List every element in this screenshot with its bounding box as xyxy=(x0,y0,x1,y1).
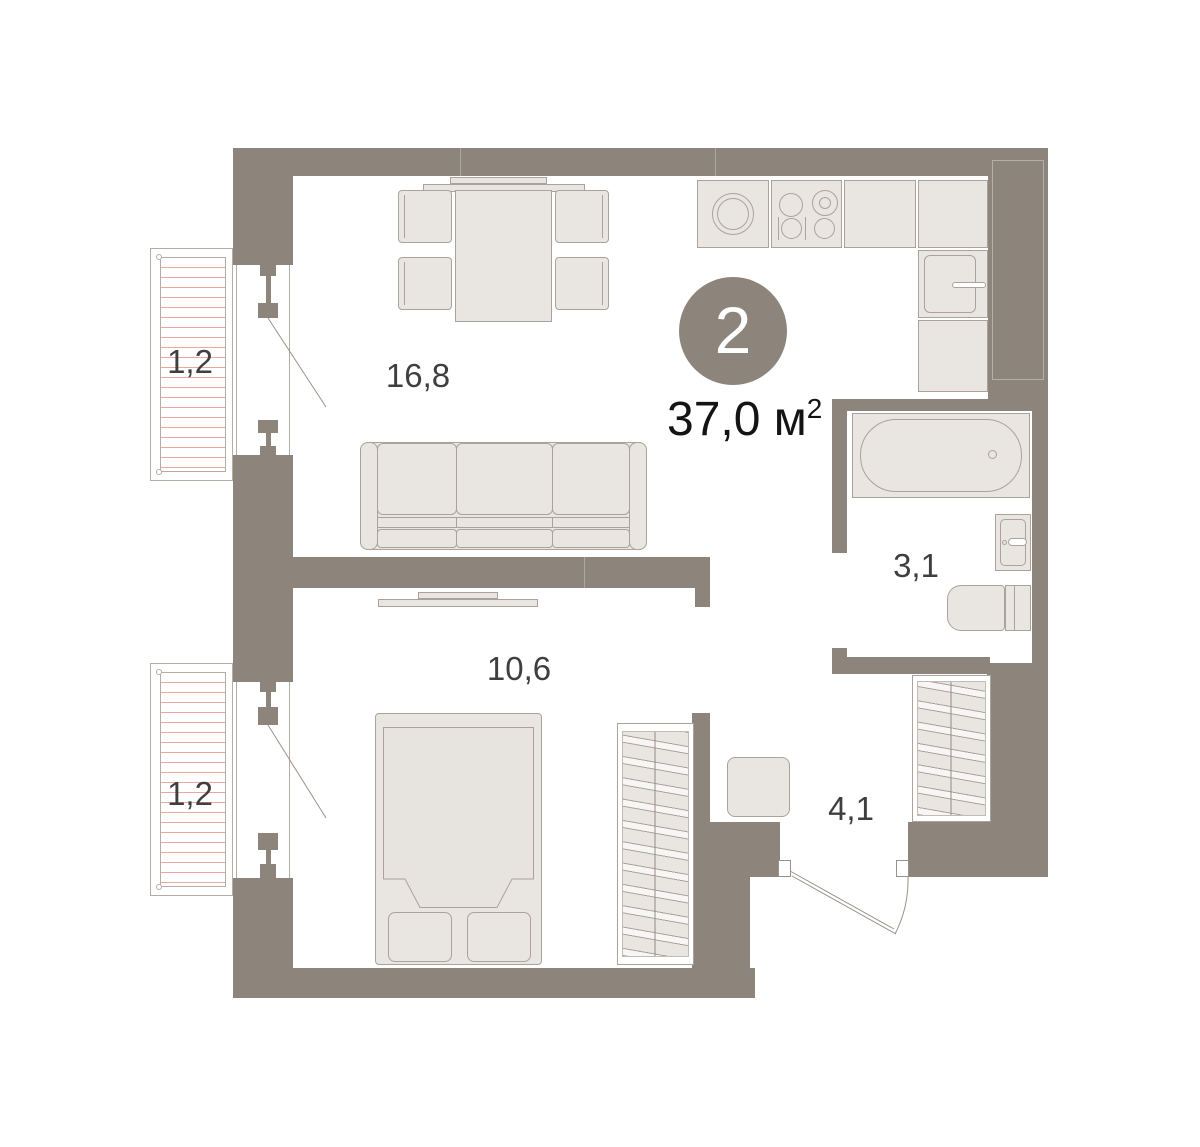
kitchen-round-sink-inner xyxy=(717,198,749,230)
kitchen-corner-module xyxy=(918,180,988,248)
toilet-bowl xyxy=(947,585,1005,631)
wall-bathroom-top xyxy=(847,399,1048,411)
window-bottom-outer-line xyxy=(236,682,237,878)
wall-left-upper xyxy=(233,148,293,265)
kitchen-counter-module xyxy=(844,180,916,248)
wall-bathroom-bottom xyxy=(847,657,990,674)
balcony-door-swing-bottom xyxy=(268,725,326,818)
rooms-count-value: 2 xyxy=(715,293,752,367)
balcony-bottom-area-label: 1,2 xyxy=(167,775,213,813)
window-bottom-hinge-block xyxy=(258,707,278,725)
dining-chair-bottom-right xyxy=(555,257,609,310)
sofa-back-rail-1 xyxy=(377,517,457,528)
stove-burner-3 xyxy=(781,218,802,239)
balcony-top-rail-post-a xyxy=(156,254,162,260)
tv xyxy=(378,599,538,607)
wall-bottom xyxy=(233,968,755,998)
entry-door-jamb-left xyxy=(778,860,791,877)
rooms-count-badge: 2 xyxy=(679,277,787,385)
sofa-seat-cushion-1 xyxy=(377,443,457,515)
bedroom-area-label: 10,6 xyxy=(487,650,551,688)
hallway-stool xyxy=(727,757,790,817)
bathroom-area-label: 3,1 xyxy=(893,547,939,585)
window-bottom-post-b xyxy=(260,864,276,878)
stove-burner-2-inner xyxy=(819,197,831,209)
balcony-top-rail-post-b xyxy=(156,469,162,475)
bathtub-drain xyxy=(988,450,997,459)
bathroom-faucet-dot xyxy=(1002,540,1007,545)
kitchen-lower-cabinet xyxy=(918,320,988,392)
wall-bathroom-left xyxy=(832,399,847,553)
dining-table xyxy=(455,190,552,322)
toilet-tank xyxy=(1005,585,1031,631)
hallway-area-label: 4,1 xyxy=(828,790,874,828)
dining-chair-top-right xyxy=(555,190,609,243)
window-bottom-stem-a xyxy=(266,692,271,707)
balcony-bottom-rail-post-a xyxy=(156,669,162,675)
bathroom-faucet xyxy=(1008,538,1027,546)
wall-hall-right xyxy=(990,682,1048,822)
wall-bathroom-left-stub xyxy=(832,648,847,674)
bed-pillow-right xyxy=(467,912,531,962)
console-center xyxy=(450,177,547,184)
window-top-post-b xyxy=(260,446,276,455)
window-top-block-b xyxy=(258,420,278,433)
wall-seam-2 xyxy=(715,148,716,176)
window-top-inner-line xyxy=(289,265,290,455)
window-top-hinge-block xyxy=(258,303,278,318)
total-area-value: 37,0 xyxy=(667,393,760,446)
balcony-bottom-rail-post-b xyxy=(156,884,162,890)
window-bottom-block-b xyxy=(258,833,278,850)
sofa-armrest-right xyxy=(629,442,647,550)
bathtub-inner xyxy=(860,419,1022,492)
window-top-stem-a xyxy=(266,276,271,303)
wall-hall-bottom xyxy=(908,822,1048,877)
floor-plan: 2 37,0 м2 16,8 10,6 3,1 4,1 1,2 1,2 xyxy=(0,0,1200,1147)
sofa-armrest-left xyxy=(360,442,378,550)
window-bottom-post-a xyxy=(260,682,276,692)
window-top-outer-line xyxy=(236,265,237,455)
sofa-back-cushion-2 xyxy=(456,529,553,548)
tv-stand xyxy=(418,592,498,599)
wall-entry-left-column xyxy=(692,877,750,982)
living-room-area-label: 16,8 xyxy=(386,357,450,395)
entry-door-jamb-right xyxy=(896,860,909,877)
sofa-seat-cushion-3 xyxy=(552,443,630,515)
entry-door-swing-arc xyxy=(895,877,908,934)
sofa-back-rail-2 xyxy=(456,517,553,528)
balcony-top-area-label: 1,2 xyxy=(167,343,213,381)
kitchen-faucet xyxy=(952,282,986,288)
dining-chair-top-left xyxy=(398,190,452,243)
wall-entry-left-block xyxy=(692,822,780,877)
total-area-superscript: 2 xyxy=(807,393,823,424)
wall-bathroom-corner xyxy=(987,663,1048,682)
window-top-stem-b xyxy=(266,433,271,446)
wall-left-middle xyxy=(233,455,293,682)
wall-living-bedroom xyxy=(293,557,710,588)
window-bottom-stem-b xyxy=(266,850,271,864)
total-area-label: 37,0 м2 xyxy=(667,392,822,447)
stove-burner-4 xyxy=(814,218,835,239)
sofa-back-cushion-3 xyxy=(552,529,630,548)
hallway-wardrobe-hangers xyxy=(917,681,986,816)
wall-bathroom-right xyxy=(1032,399,1048,663)
window-bottom-inner-line xyxy=(289,682,290,878)
wall-top xyxy=(233,148,1048,176)
sofa-back-rail-3 xyxy=(552,517,630,528)
stove-burner-1 xyxy=(779,193,803,217)
balcony-door-swing-top xyxy=(268,318,326,407)
dining-chair-bottom-left xyxy=(398,257,452,310)
total-area-unit: м xyxy=(774,393,807,446)
wall-bedroom-door-strip xyxy=(692,713,710,822)
toilet-tank-line xyxy=(1014,586,1015,630)
wall-seam-3 xyxy=(584,557,585,588)
wall-shaft-outline xyxy=(992,160,1044,380)
wall-seam-1 xyxy=(460,148,461,176)
entry-door-leaf xyxy=(790,871,896,934)
bedroom-wardrobe-hangers xyxy=(622,731,689,957)
window-top-post-a xyxy=(260,265,276,276)
sofa-back-cushion-1 xyxy=(377,529,457,548)
sofa-seat-cushion-2 xyxy=(456,443,553,515)
wall-living-bedroom-return xyxy=(695,588,710,607)
bed-pillow-left xyxy=(388,912,452,962)
